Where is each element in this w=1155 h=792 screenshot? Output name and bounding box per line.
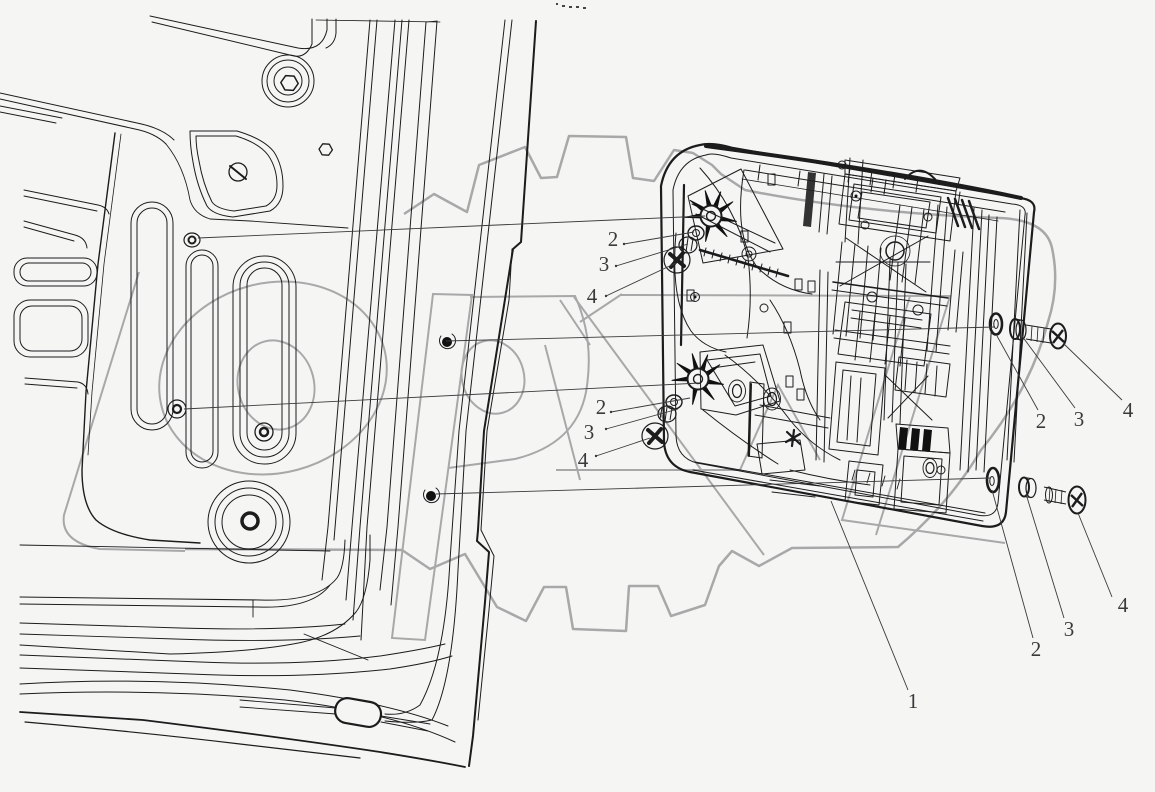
svg-text:4: 4 xyxy=(1123,398,1134,422)
svg-text:3: 3 xyxy=(1074,407,1085,431)
svg-text:2: 2 xyxy=(596,395,607,419)
svg-text:1: 1 xyxy=(908,689,919,713)
svg-text:2: 2 xyxy=(608,227,619,251)
svg-text:3: 3 xyxy=(1064,617,1075,641)
svg-text:3: 3 xyxy=(584,420,595,444)
svg-text:4: 4 xyxy=(578,448,589,472)
svg-text:4: 4 xyxy=(587,284,598,308)
svg-text:2: 2 xyxy=(1036,409,1047,433)
svg-text:2: 2 xyxy=(1031,637,1042,661)
svg-text:4: 4 xyxy=(1118,593,1129,617)
svg-text:3: 3 xyxy=(599,252,610,276)
